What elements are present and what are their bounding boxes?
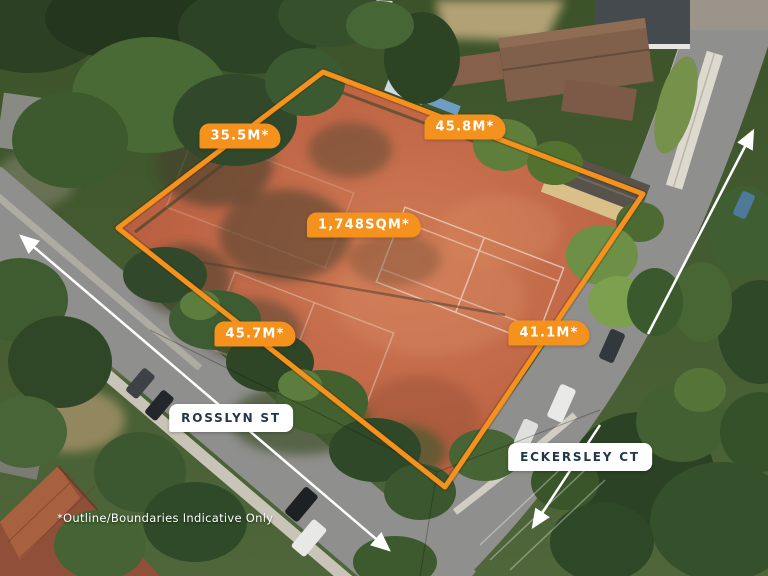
eckersley-ct-north-arrow (648, 131, 753, 334)
measurement-label-top-right-side: 45.8M* (424, 115, 505, 140)
measurement-label-top-left-side: 35.5M* (199, 124, 280, 149)
annotation-overlay (0, 0, 768, 576)
measurement-label-bottom-left-side: 45.7M* (214, 322, 295, 347)
area-label: 1,748SQM* (307, 213, 421, 238)
street-label-eckersley-ct: ECKERSLEY CT (508, 443, 652, 471)
boundary-disclaimer-text: *Outline/Boundaries Indicative Only (57, 511, 273, 525)
eckersley-ct-southwest-arrow (533, 425, 600, 527)
rosslyn-st-northwest-arrow (21, 236, 205, 393)
aerial-property-photo: 35.5M* 45.8M* 1,748SQM* 45.7M* 41.1M* RO… (0, 0, 768, 576)
measurement-label-bottom-right-side: 41.1M* (508, 321, 589, 346)
street-label-rosslyn-st: ROSSLYN ST (169, 404, 293, 432)
